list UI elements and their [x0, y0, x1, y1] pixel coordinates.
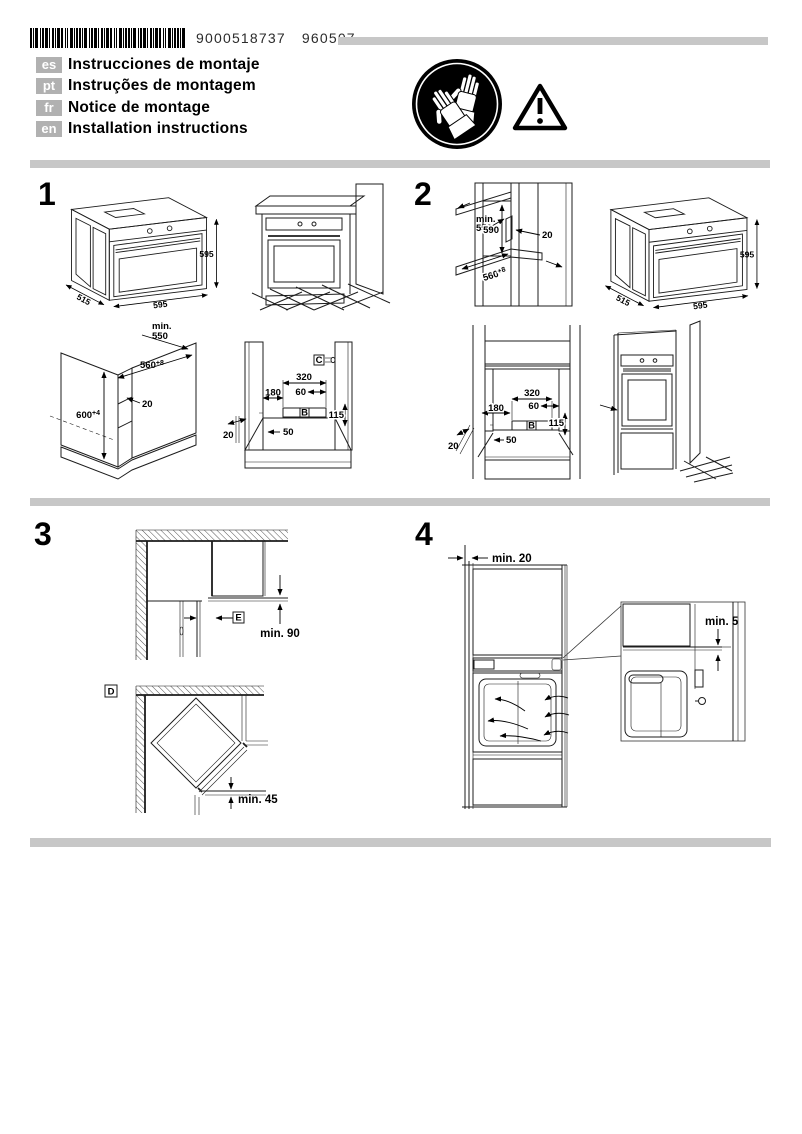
appliance-top-view: [212, 541, 263, 596]
base-cabinet-niche-diagram: min. 550 560+8 600+4 20: [46, 316, 236, 486]
dim-60: 60: [528, 401, 539, 412]
label-c: C: [316, 355, 323, 366]
dim-min-90: min. 90: [260, 628, 300, 640]
wall-hatch-top: [136, 686, 264, 695]
right-panel: [335, 342, 352, 450]
dim-180: 180: [265, 388, 281, 399]
divider-middle: [30, 498, 770, 506]
lang-badge-en: en: [36, 121, 62, 137]
lower-cabinet-door: [473, 759, 562, 805]
dim-niche-height: 600+4: [76, 410, 100, 421]
wall: [356, 184, 383, 294]
oven-dimensions-diagram-2: 595 515 595: [597, 186, 779, 313]
diagonal-corner-installation-view: D min. 45: [98, 676, 323, 821]
dim-320: 320: [524, 388, 540, 399]
dim-115: 115: [329, 410, 345, 421]
wall-hatch-left: [136, 686, 145, 813]
dim-50: 50: [506, 435, 517, 446]
oven-door-glass: [119, 248, 196, 292]
section-2-number: 2: [414, 176, 432, 213]
section-3-number: 3: [34, 516, 52, 553]
corner-installation-top-view: E min. 90: [118, 525, 353, 667]
dim-oven-width: 595: [693, 300, 709, 312]
lang-badge-pt: pt: [36, 78, 62, 94]
floor-tiles: [680, 457, 733, 482]
dim-50: 50: [283, 427, 294, 438]
ventilation-gap-detail: min. 5: [619, 599, 749, 744]
divider-top: [30, 160, 770, 168]
lang-badge-es: es: [36, 57, 62, 73]
dim-min-45: min. 45: [238, 794, 278, 806]
title-pt: Instruções de montagem: [68, 77, 256, 95]
lang-badge-fr: fr: [36, 100, 62, 116]
wall-hatch-top: [136, 530, 288, 541]
screw-icon: [325, 357, 335, 362]
oven-installed-tall-view: [598, 321, 733, 483]
dim-20: 20: [542, 230, 553, 241]
warning-triangle-icon: [512, 82, 568, 132]
dim-60: 60: [295, 387, 306, 398]
language-row-fr: fr Notice de montage: [36, 100, 62, 116]
dim-180: 180: [488, 403, 504, 414]
label-e: E: [235, 613, 241, 624]
label-b: B: [301, 408, 308, 419]
divider-bottom: [30, 838, 771, 847]
oven-front-face: [649, 218, 747, 301]
appliance-diagonal-top-view: [151, 698, 241, 788]
section-4-number: 4: [415, 516, 433, 553]
title-es: Instrucciones de montaje: [68, 56, 260, 74]
dim-rear-gap: 20: [142, 399, 153, 410]
dim-min-5: min. 5: [705, 616, 739, 628]
oven-under-worktop-view: [252, 180, 390, 312]
detail-callout-lines: [561, 599, 623, 661]
base-cabinet-front-dimensions: B C 320 60 180 115 50 20: [220, 328, 390, 480]
dim-560-8: 560+8: [482, 266, 508, 284]
oven-dimensions-diagram-1: 595 515 595: [58, 186, 238, 312]
tall-cabinet-niche-diagram: min. 550 590 20 560+8: [450, 181, 588, 308]
barcode-number: 9000518737: [196, 30, 286, 46]
oven-door-glass: [628, 380, 666, 420]
upper-compartment: [485, 341, 570, 364]
tall-cabinet-front-dimensions: B 320 60 180 115 50 20: [440, 323, 602, 481]
wear-protective-gloves-icon: [410, 57, 504, 151]
dark-partition: [511, 183, 519, 306]
dim-20: 20: [223, 430, 234, 441]
dim-niche-width: 560+8: [140, 360, 164, 371]
title-en: Installation instructions: [68, 120, 248, 138]
dim-320: 320: [296, 372, 312, 383]
language-row-es: es Instrucciones de montaje: [36, 57, 62, 73]
dim-20: 20: [448, 441, 459, 452]
label-b: B: [528, 421, 535, 432]
document-codes: 9000518737 960507: [196, 30, 356, 46]
plinth: [61, 435, 196, 479]
airflow-arrows: [488, 696, 569, 741]
dim-oven-depth: 515: [614, 293, 632, 309]
barcode: [30, 28, 187, 48]
dim-oven-height: 595: [740, 250, 755, 260]
dim-oven-width: 595: [153, 299, 169, 311]
dim-min-20: min. 20: [492, 553, 532, 565]
lower-door: [621, 433, 673, 469]
lower-compartment: [485, 460, 570, 479]
oven-front-face: [109, 218, 206, 301]
dim-115: 115: [549, 418, 565, 429]
section-1-number: 1: [38, 176, 56, 213]
wall: [690, 321, 700, 463]
upper-cabinet-door: [473, 569, 562, 655]
worktop: [256, 206, 356, 214]
oven-door-glass: [659, 249, 737, 293]
wall-hatch-left: [136, 530, 147, 660]
language-row-en: en Installation instructions: [36, 121, 62, 137]
label-d: D: [108, 687, 115, 698]
title-fr: Notice de montage: [68, 99, 210, 117]
rear-web: [118, 397, 132, 428]
dim-590: 590: [483, 225, 499, 236]
dim-oven-height: 595: [199, 249, 214, 259]
tall-cabinet-ventilation-diagram: min. 20: [446, 541, 601, 813]
header-rule: [338, 37, 768, 45]
oven-door-glass: [274, 246, 334, 282]
language-row-pt: pt Instruções de montagem: [36, 78, 62, 94]
dim-oven-depth: 515: [75, 292, 93, 308]
